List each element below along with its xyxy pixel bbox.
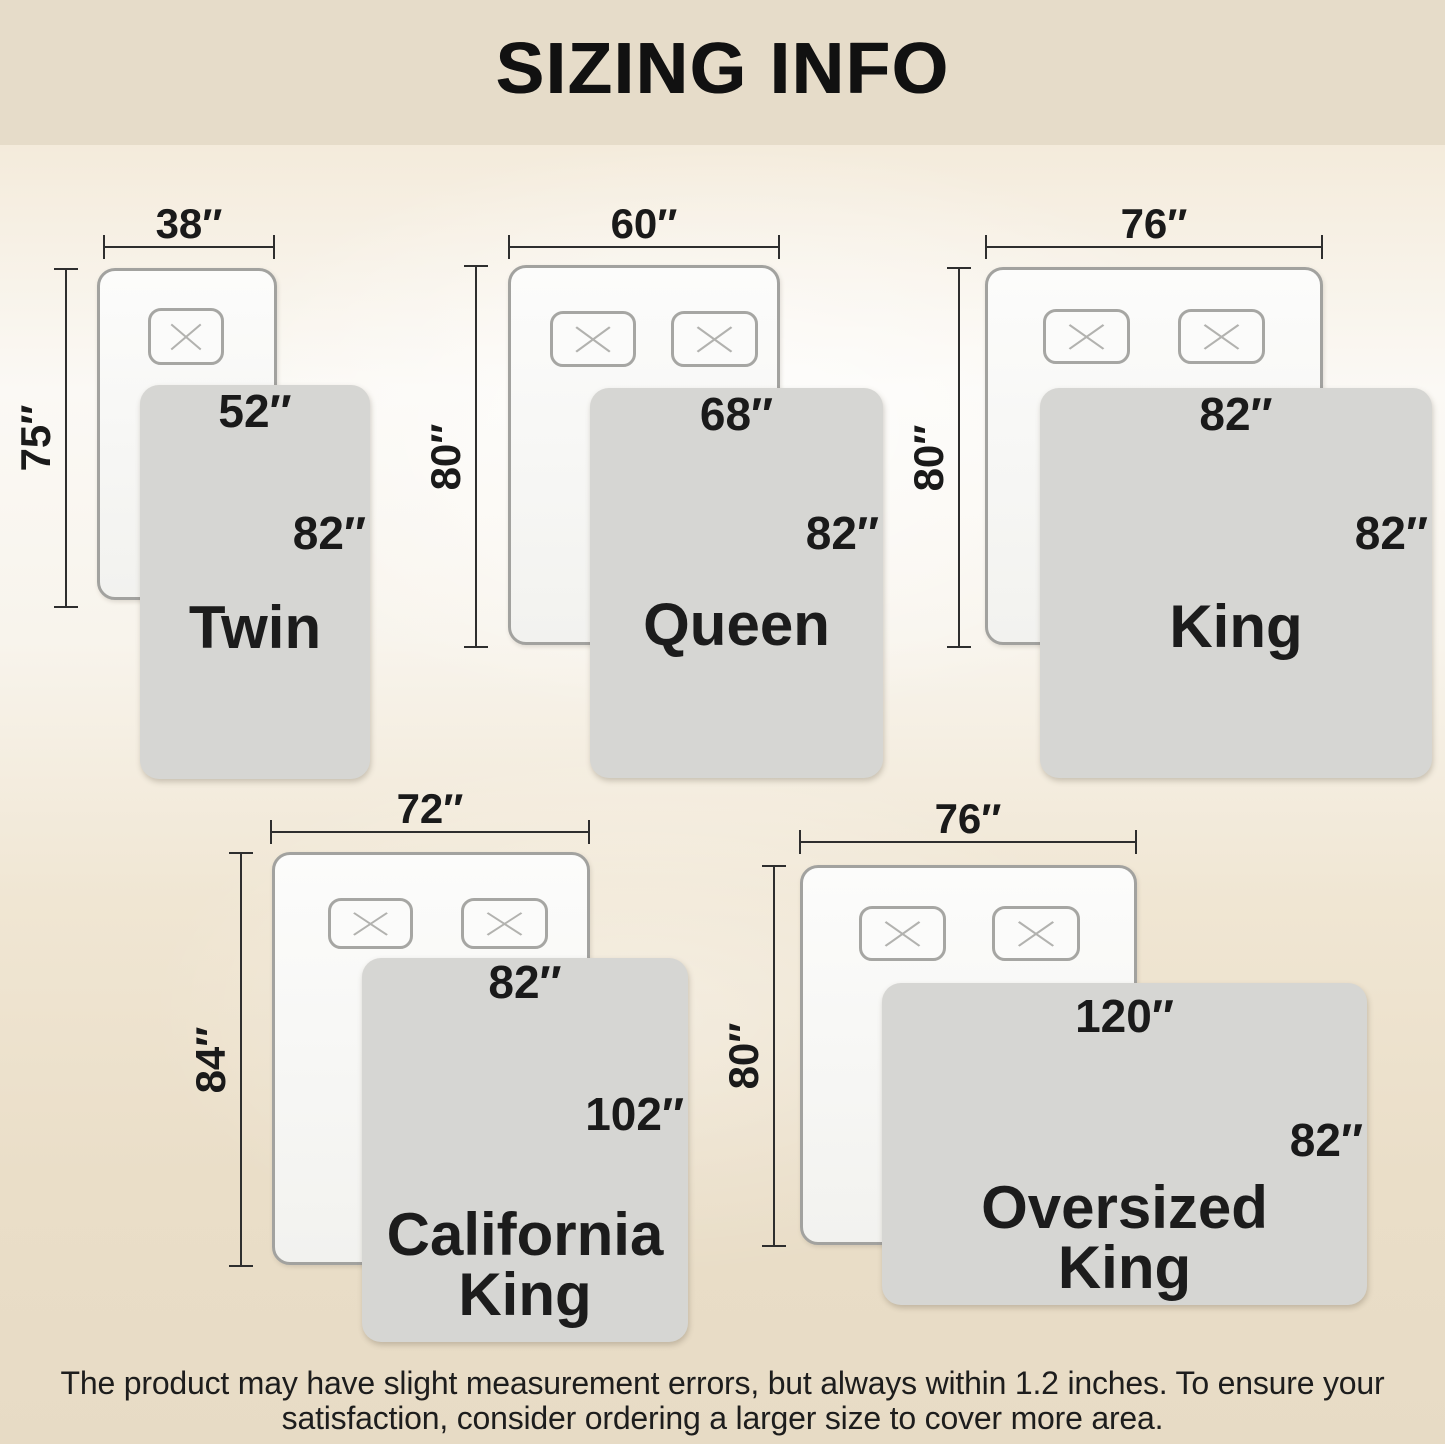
- blanket-twin: 52″ 82″ Twin: [140, 385, 370, 779]
- bed-length-dimension: 80″: [464, 265, 488, 648]
- bed-length-dimension: 80″: [762, 865, 786, 1247]
- footer-note-line2: satisfaction, consider ordering a larger…: [0, 1401, 1445, 1436]
- pillow-icon: [461, 898, 548, 949]
- pillow-icon: [148, 308, 224, 365]
- blanket-length-label: 82″: [1290, 1116, 1363, 1164]
- bed-width-dimension: 72″: [270, 820, 590, 844]
- pillow-cross-icon: [1046, 312, 1127, 361]
- bed-length-dimension: 80″: [947, 267, 971, 648]
- footer-note-line1: The product may have slight measurement …: [0, 1366, 1445, 1401]
- blanket-width-label: 52″: [140, 387, 370, 435]
- pillow-cross-icon: [674, 314, 755, 364]
- bed-width-label: 76″: [985, 203, 1323, 245]
- pillow-icon: [1043, 309, 1130, 364]
- pillow-cross-icon: [1181, 312, 1262, 361]
- bed-length-label: 84″: [187, 1026, 235, 1093]
- dimension-line: [240, 852, 242, 1267]
- size-name-label: CaliforniaKing: [362, 1205, 688, 1325]
- bed-length-dimension: 84″: [229, 852, 253, 1267]
- bed-length-label: 80″: [905, 424, 953, 491]
- bed-length-label: 80″: [720, 1023, 768, 1090]
- bed-width-label: 76″: [799, 798, 1137, 840]
- size-name-label: Twin: [140, 598, 370, 658]
- pillow-icon: [992, 906, 1080, 961]
- footer-note: The product may have slight measurement …: [0, 1366, 1445, 1436]
- pillow-cross-icon: [862, 909, 943, 958]
- size-name-label: OversizedKing: [882, 1178, 1367, 1298]
- page-title: SIZING INFO: [0, 28, 1445, 110]
- pillow-cross-icon: [553, 314, 633, 364]
- dimension-line: [773, 865, 775, 1247]
- dimension-line: [958, 267, 960, 648]
- pillow-icon: [550, 311, 636, 367]
- blanket-king: 82″ 82″ King: [1040, 388, 1432, 778]
- pillow-icon: [1178, 309, 1265, 364]
- pillow-icon: [328, 898, 413, 949]
- bed-width-dimension: 76″: [799, 830, 1137, 854]
- size-name-label: King: [1040, 597, 1432, 657]
- pillow-cross-icon: [151, 311, 221, 362]
- bed-length-label: 75″: [12, 405, 60, 472]
- blanket-width-label: 120″: [882, 992, 1367, 1040]
- bed-width-label: 72″: [270, 788, 590, 830]
- bed-width-label: 38″: [103, 203, 275, 245]
- blanket-width-label: 82″: [362, 958, 688, 1006]
- blanket-queen: 68″ 82″ Queen: [590, 388, 883, 778]
- blanket-length-label: 82″: [806, 509, 879, 557]
- pillow-icon: [671, 311, 758, 367]
- pillow-cross-icon: [995, 909, 1077, 958]
- blanket-oversized-king: 120″ 82″ OversizedKing: [882, 983, 1367, 1305]
- bed-length-label: 80″: [422, 423, 470, 490]
- blanket-width-label: 68″: [590, 390, 883, 438]
- bed-width-dimension: 38″: [103, 235, 275, 259]
- size-name-label: Queen: [590, 595, 883, 655]
- sizing-info-page: SIZING INFO 38″ 75″ 52″ 82″ Twin: [0, 0, 1445, 1444]
- blanket-length-label: 102″: [585, 1090, 684, 1138]
- bed-width-dimension: 60″: [508, 235, 780, 259]
- bed-length-dimension: 75″: [54, 268, 78, 608]
- blanket-width-label: 82″: [1040, 390, 1432, 438]
- pillow-icon: [859, 906, 946, 961]
- dimension-line: [475, 265, 477, 648]
- pillow-cross-icon: [464, 901, 545, 946]
- blanket-length-label: 82″: [1355, 509, 1428, 557]
- blanket-length-label: 82″: [293, 509, 366, 557]
- dimension-line: [65, 268, 67, 608]
- bed-width-label: 60″: [508, 203, 780, 245]
- pillow-cross-icon: [331, 901, 410, 946]
- bed-width-dimension: 76″: [985, 235, 1323, 259]
- blanket-california-king: 82″ 102″ CaliforniaKing: [362, 958, 688, 1342]
